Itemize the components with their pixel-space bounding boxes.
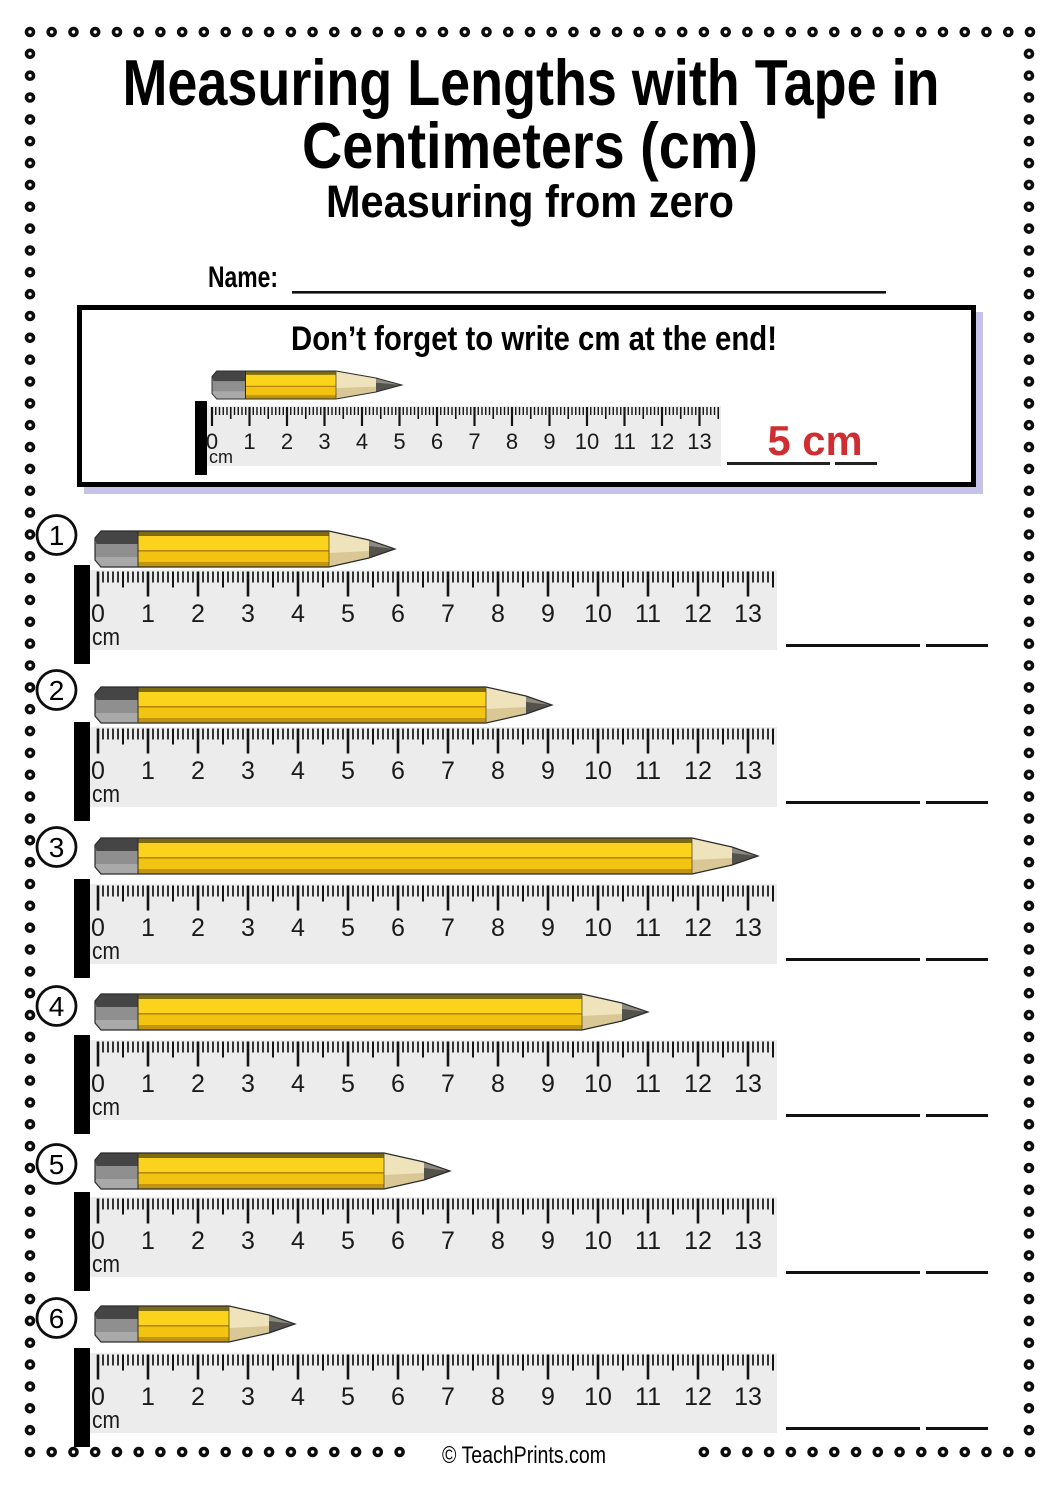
svg-text:3: 3 xyxy=(318,429,330,454)
svg-text:Measuring from zero: Measuring from zero xyxy=(326,176,734,227)
svg-text:Measuring Lengths with Tape in: Measuring Lengths with Tape in xyxy=(123,47,940,119)
svg-text:7: 7 xyxy=(468,429,480,454)
svg-text:Centimeters (cm): Centimeters (cm) xyxy=(302,110,758,182)
svg-text:© TeachPrints.com: © TeachPrints.com xyxy=(442,1442,606,1469)
svg-text:6: 6 xyxy=(431,429,443,454)
svg-text:5 cm: 5 cm xyxy=(768,417,863,464)
svg-text:6: 6 xyxy=(49,1303,65,1334)
svg-text:3: 3 xyxy=(49,832,65,863)
svg-text:5: 5 xyxy=(49,1149,65,1180)
svg-text:8: 8 xyxy=(506,429,518,454)
svg-text:2: 2 xyxy=(281,429,293,454)
svg-text:10: 10 xyxy=(575,429,599,454)
svg-text:13: 13 xyxy=(687,429,711,454)
svg-text:1: 1 xyxy=(243,429,255,454)
svg-text:11: 11 xyxy=(613,429,636,454)
svg-text:5: 5 xyxy=(393,429,405,454)
svg-text:4: 4 xyxy=(49,991,65,1022)
svg-text:12: 12 xyxy=(650,429,674,454)
svg-text:9: 9 xyxy=(543,429,555,454)
svg-text:Name:: Name: xyxy=(208,261,278,294)
svg-text:4: 4 xyxy=(356,429,368,454)
svg-text:cm: cm xyxy=(209,447,233,467)
svg-text:1: 1 xyxy=(49,520,65,551)
svg-text:Don’t forget to write cm at th: Don’t forget to write cm at the end! xyxy=(291,320,777,358)
svg-text:2: 2 xyxy=(49,675,65,706)
